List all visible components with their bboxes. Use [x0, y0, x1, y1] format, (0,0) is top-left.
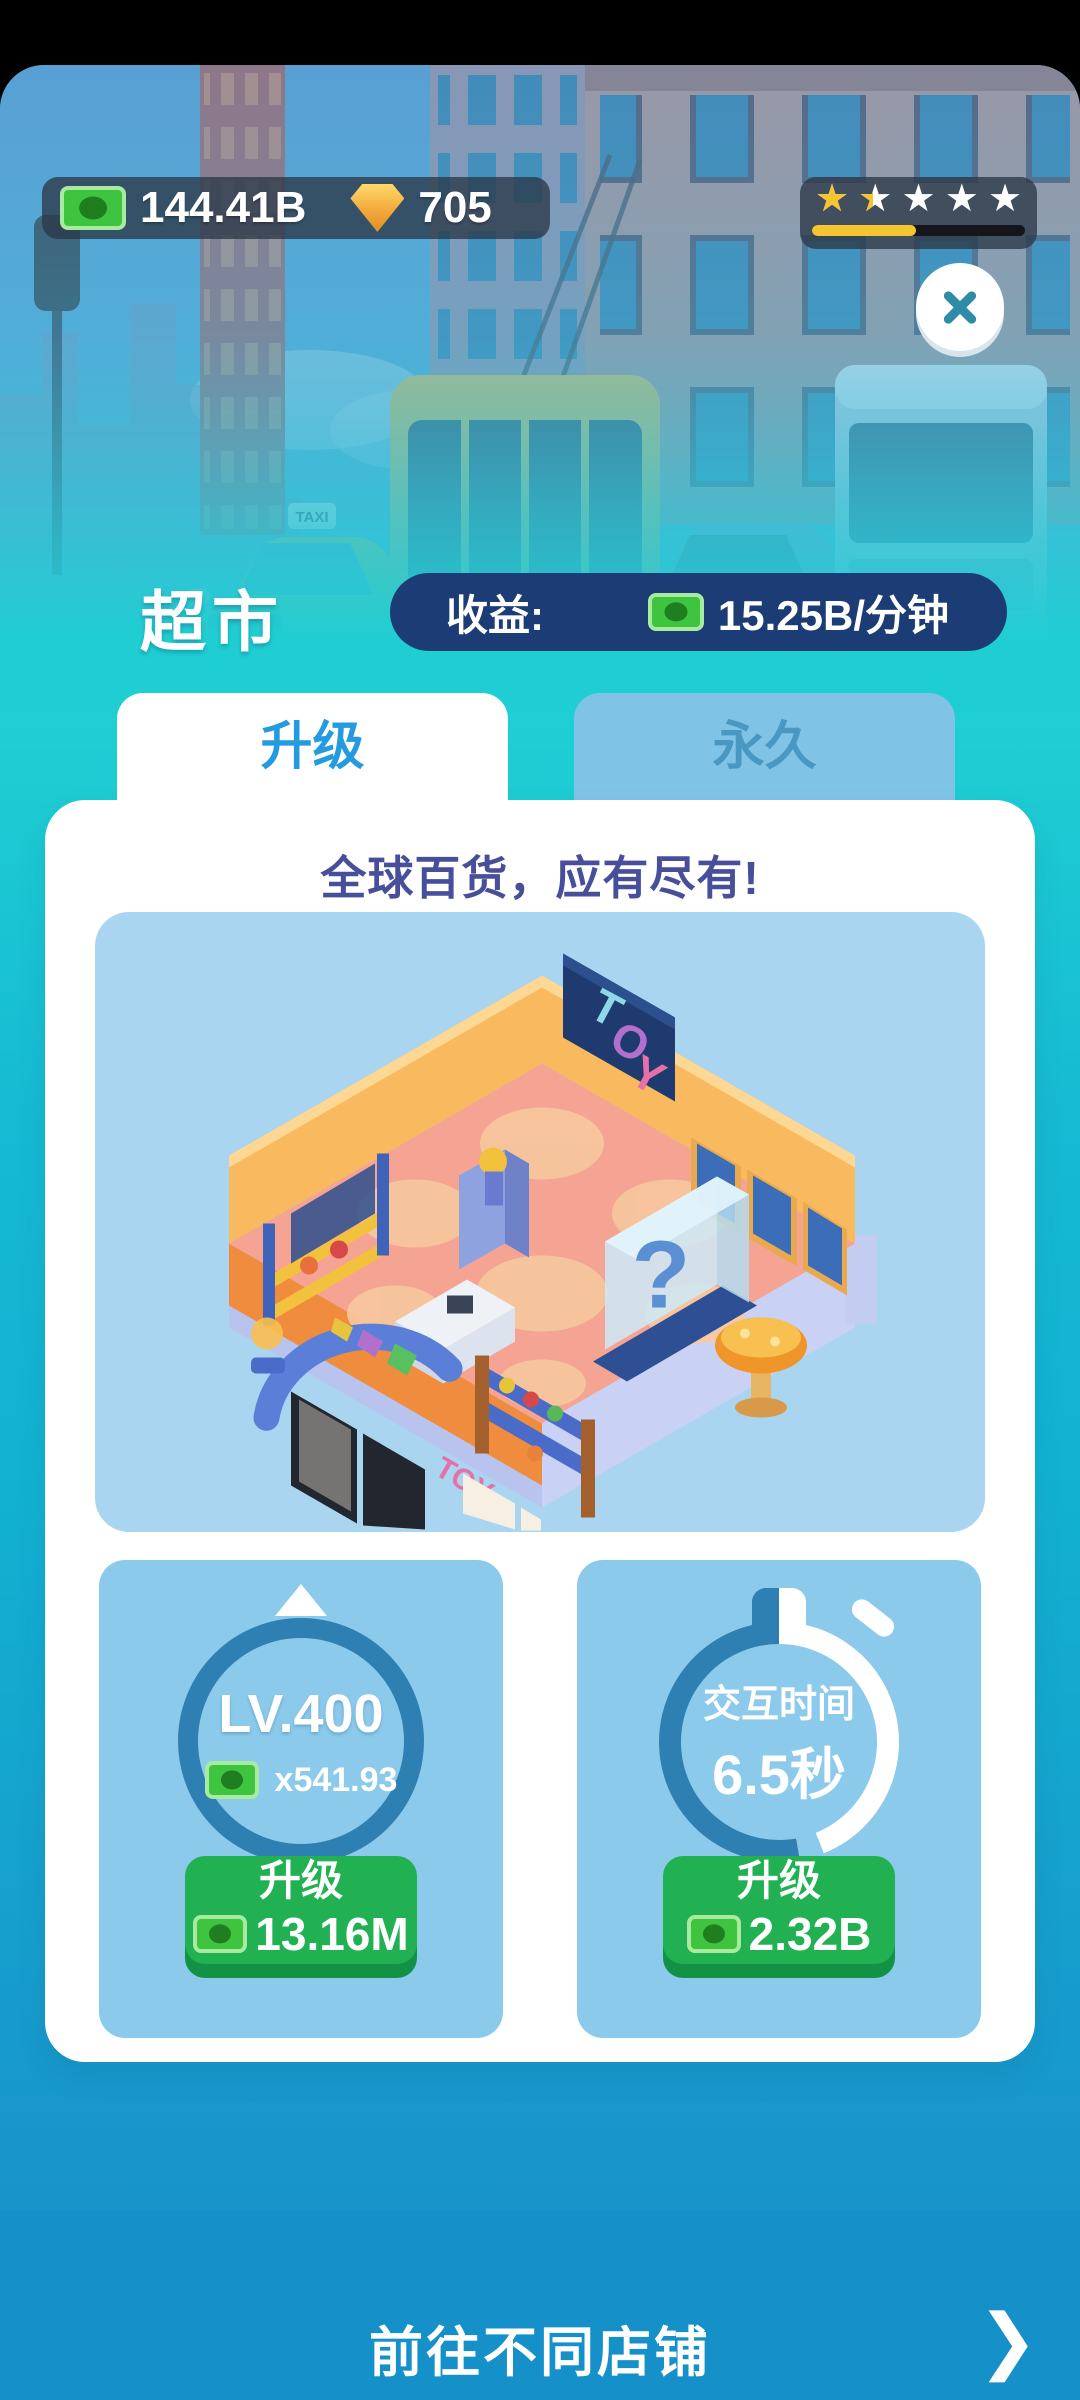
star-rating: ★★ ★★ ★★ ★★ ★★: [812, 180, 1025, 222]
money-icon: [60, 186, 126, 230]
card-headline: 全球百货，应有尽有!: [45, 842, 1035, 908]
footer-bar[interactable]: 前往不同店铺 ❯: [0, 2210, 1080, 2400]
upgrade-interaction-button[interactable]: 升级 2.32B: [663, 1856, 895, 1964]
income-pill: 收益: 15.25B/分钟: [390, 573, 1007, 651]
chevron-right-icon[interactable]: ❯: [978, 2298, 1038, 2382]
mystery-mark: ?: [632, 1222, 691, 1329]
store-panel: T O Y: [95, 912, 985, 1532]
rating-progress-bar: [812, 225, 1025, 236]
multiplier-value: x541.93: [275, 1761, 398, 1800]
close-button[interactable]: [916, 263, 1004, 351]
money-icon: [193, 1915, 247, 1953]
game-viewport: TAXI: [0, 65, 1080, 2400]
multiplier-row: x541.93: [205, 1761, 398, 1800]
tab-upgrade[interactable]: 升级: [117, 693, 508, 813]
upgrade-level-button[interactable]: 升级 13.16M: [185, 1856, 417, 1964]
star-icon: ★★: [855, 180, 895, 222]
level-value: LV.400: [218, 1683, 383, 1745]
money-value: 144.41B: [140, 183, 306, 233]
currency-panel: 144.41B 705: [42, 177, 550, 239]
level-up-arrow-icon: [275, 1584, 327, 1616]
money-icon: [648, 593, 704, 631]
stopwatch-knob-icon: [848, 1595, 898, 1640]
star-icon: ★★: [985, 180, 1025, 222]
income-label: 收益:: [446, 582, 544, 643]
rating-panel: ★★ ★★ ★★ ★★ ★★: [800, 177, 1037, 249]
upgrade-card-interaction: 交互时间 6.5秒 升级 2.32B: [577, 1560, 981, 2038]
rating-progress-fill: [812, 225, 916, 236]
status-bar: [0, 0, 1080, 65]
interaction-value: 6.5秒: [712, 1730, 846, 1811]
main-card: 全球百货，应有尽有!: [45, 800, 1035, 2062]
income-value: 15.25B/分钟: [718, 582, 949, 643]
level-upgrade-cost: 13.16M: [255, 1907, 408, 1961]
stopwatch-icon: 交互时间 6.5秒: [659, 1622, 899, 1862]
footer-label: 前往不同店铺: [0, 2308, 1080, 2387]
page-title: 超市: [140, 569, 284, 665]
close-icon: [937, 284, 983, 330]
level-circle: LV.400 x541.93: [178, 1618, 424, 1864]
diamond-icon: [350, 184, 404, 232]
tab-permanent-label: 永久: [712, 718, 816, 776]
star-icon: ★★: [942, 180, 982, 222]
upgrade-card-level: LV.400 x541.93 升级 13.16M: [99, 1560, 503, 2038]
stopwatch-stem-icon: [752, 1588, 806, 1634]
store-illustration: T O Y: [95, 912, 985, 1532]
game-screen: TAXI: [0, 0, 1080, 2400]
tab-upgrade-label: 升级: [260, 718, 364, 776]
tab-permanent[interactable]: 永久: [574, 693, 955, 800]
interaction-upgrade-cost: 2.32B: [749, 1907, 872, 1961]
money-icon: [687, 1915, 741, 1953]
star-icon: ★★: [812, 180, 852, 222]
star-icon: ★★: [899, 180, 939, 222]
diamond-value: 705: [418, 183, 491, 233]
money-icon: [205, 1761, 259, 1799]
interaction-label: 交互时间: [703, 1673, 855, 1728]
